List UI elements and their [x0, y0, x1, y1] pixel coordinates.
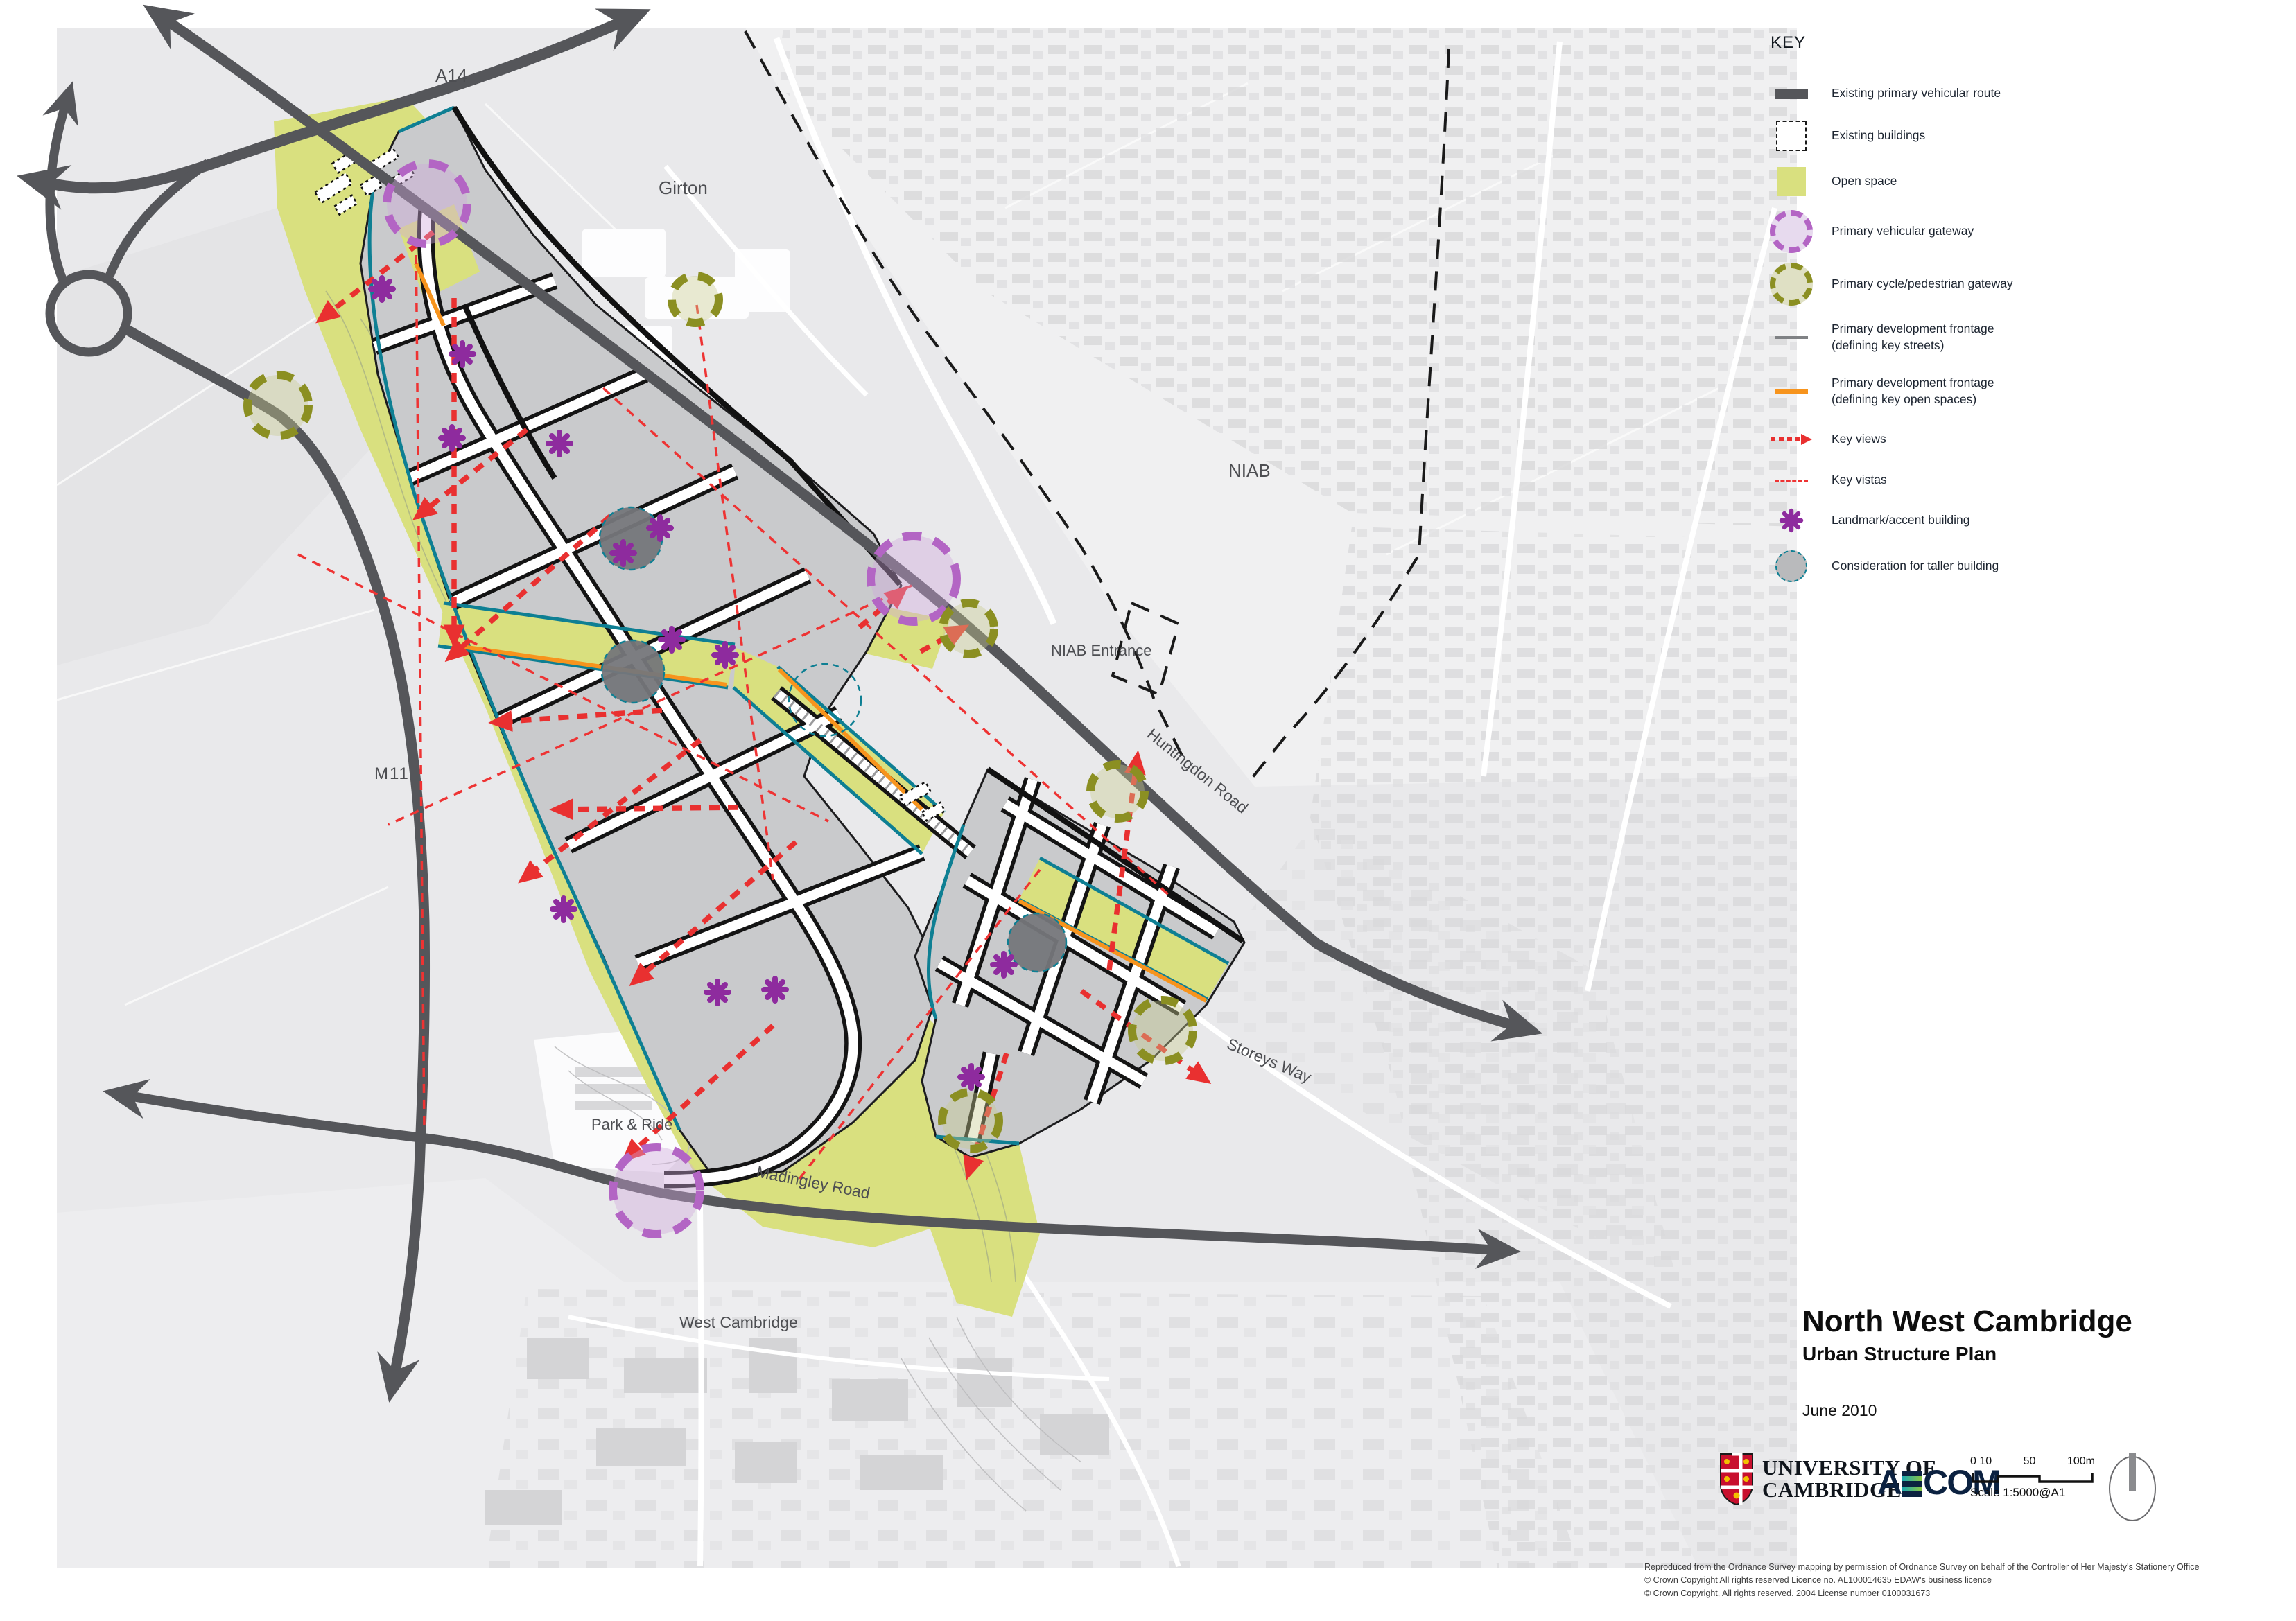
title-block: North West Cambridge Urban Structure Pla… [1802, 1304, 2132, 1420]
label-west-cambridge: West Cambridge [679, 1313, 798, 1331]
legend-item-frontage-streets: Primary development frontage (defining k… [1766, 310, 2155, 365]
frontage-open-spaces-icon [1766, 389, 1816, 394]
page-subtitle: Urban Structure Plan [1802, 1343, 2132, 1365]
legend-item-cycle-gateway: Primary cycle/pedestrian gateway [1766, 258, 2155, 310]
legend-item-taller-building: Consideration for taller building [1766, 541, 2155, 592]
label-girton: Girton [659, 177, 708, 198]
scale-bar: 0 10 50 100m Scale 1:5000@A1 [1970, 1455, 2095, 1500]
landmark-icon [1766, 507, 1816, 534]
label-a14: A14 [435, 65, 467, 86]
legend-item-existing-buildings: Existing buildings [1766, 114, 2155, 158]
legend-item-key-vistas: Key vistas [1766, 460, 2155, 500]
label-niab: NIAB [1228, 460, 1271, 481]
page-title: North West Cambridge [1802, 1304, 2132, 1339]
frontage-streets-icon [1766, 336, 1816, 339]
label-niab-entrance: NIAB Entrance [1051, 642, 1152, 659]
footer-block: UNIVERSITY OF CAMBRIDGE ACOM 0 10 50 100… [1719, 1450, 2204, 1526]
legend-heading: KEY [1771, 33, 2155, 53]
key-views-icon [1766, 432, 1816, 446]
north-arrow-icon [2107, 1450, 2157, 1522]
cycle-gateway-icon [1766, 263, 1816, 306]
plan-date: June 2010 [1802, 1401, 2132, 1420]
legend-item-frontage-open-spaces: Primary development frontage (defining k… [1766, 365, 2155, 419]
legend-item-landmark: Landmark/accent building [1766, 500, 2155, 541]
label-park-and-ride: Park & Ride [591, 1116, 672, 1133]
scale-label: Scale 1:5000@A1 [1970, 1486, 2095, 1500]
taller-building-icon [1766, 550, 1816, 582]
label-m11: M11 [374, 764, 410, 783]
vehicular-gateway-icon [1766, 210, 1816, 253]
legend-item-key-views: Key views [1766, 419, 2155, 460]
scale-bar-icon [1970, 1471, 2095, 1486]
existing-route-icon [1766, 89, 1816, 99]
key-vistas-icon [1766, 480, 1816, 482]
copyright-text: Reproduced from the Ordnance Survey mapp… [1644, 1561, 2296, 1600]
urban-structure-plan-page: { "title_block": { "title": "North West … [0, 0, 2296, 1621]
open-space-icon [1766, 167, 1816, 196]
existing-buildings-icon [1766, 121, 1816, 151]
aecom-e-glyph [1902, 1471, 1922, 1497]
legend-panel: KEY Existing primary vehicular route Exi… [1766, 33, 2155, 592]
legend-item-existing-route: Existing primary vehicular route [1766, 73, 2155, 114]
legend-item-open-space: Open space [1766, 158, 2155, 205]
scale-bar-numbers: 0 10 50 100m [1970, 1455, 2095, 1468]
legend-item-vehicular-gateway: Primary vehicular gateway [1766, 205, 2155, 258]
cambridge-crest-icon [1719, 1453, 1754, 1505]
